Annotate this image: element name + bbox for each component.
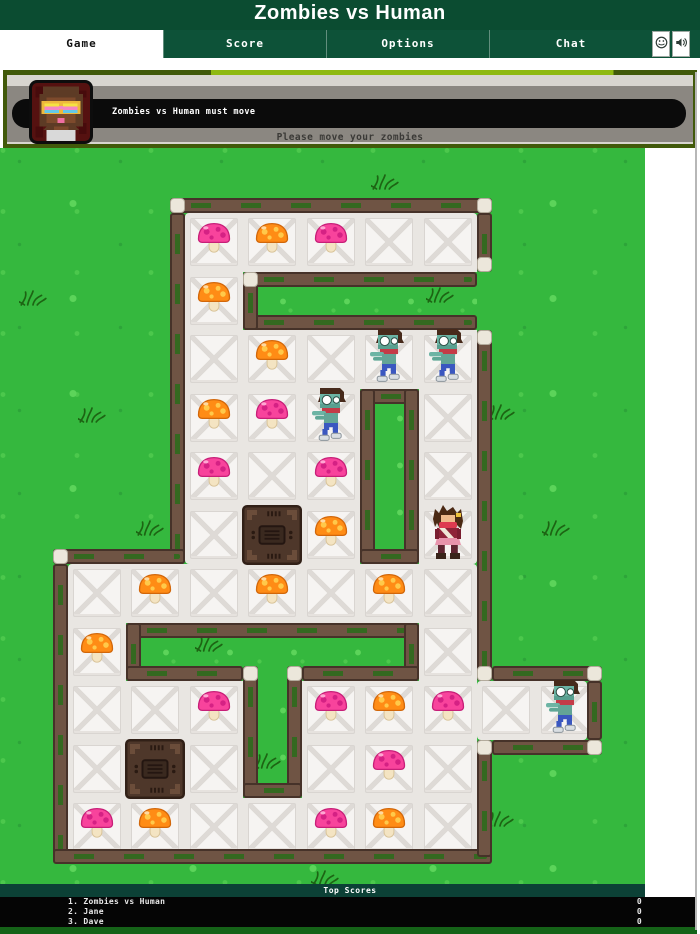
tab-score[interactable]: Score (163, 30, 326, 58)
wall-segment (492, 740, 602, 755)
score-value: 0 (637, 917, 642, 927)
grass-tuft-icon (542, 520, 570, 536)
mushroom-pink-icon (196, 690, 232, 721)
floor-tile[interactable] (307, 745, 355, 793)
score-name: 1. Zombies vs Human (68, 897, 165, 907)
wall-corner-cap (477, 666, 492, 681)
human-sprite[interactable] (427, 503, 469, 561)
score-name: 2. Jane (68, 907, 104, 917)
floor-tile[interactable] (190, 569, 238, 617)
floor-tile[interactable] (190, 511, 238, 559)
zombie-sprite[interactable] (429, 329, 467, 383)
wall-segment (477, 740, 492, 857)
wall-segment (53, 849, 493, 864)
wall-segment (404, 389, 419, 565)
top-scores-title: Top Scores (0, 886, 700, 895)
mushroom-pink-icon (313, 690, 349, 721)
floor-tile[interactable] (424, 394, 472, 442)
mushroom-pink-icon (371, 749, 407, 780)
floor-tile[interactable] (424, 803, 472, 851)
sound-icon (674, 35, 689, 54)
bottom-bar (0, 927, 697, 934)
game-board[interactable] (0, 148, 645, 884)
wall-segment (492, 666, 602, 681)
zombie-sprite[interactable] (546, 680, 584, 734)
mushroom-pink-icon (196, 222, 232, 253)
mushroom-orange-icon (79, 632, 115, 663)
floor-tile[interactable] (190, 803, 238, 851)
mushroom-pink-icon (79, 807, 115, 838)
mushroom-pink-icon (196, 456, 232, 487)
mushroom-orange-icon (371, 573, 407, 604)
wall-corner-cap (243, 666, 258, 681)
floor-tile[interactable] (248, 452, 296, 500)
score-row: 3. Dave0 (0, 917, 697, 927)
grass-tuft-icon (78, 407, 106, 423)
mushroom-orange-icon (371, 690, 407, 721)
panel-accent (3, 70, 697, 75)
floor-tile[interactable] (248, 803, 296, 851)
wall-segment (170, 198, 493, 213)
mushroom-pink-icon (313, 456, 349, 487)
floor-tile[interactable] (365, 218, 413, 266)
tab-bar: GameScoreOptionsChat (0, 30, 700, 58)
message-headline: Zombies vs Human must move (112, 107, 255, 117)
mushroom-orange-icon (137, 807, 173, 838)
floor-tile[interactable] (424, 569, 472, 617)
tabbar-underline (0, 58, 700, 70)
wall-corner-cap (477, 330, 492, 345)
floor-tile[interactable] (307, 335, 355, 383)
grass-tuft-icon (195, 636, 223, 652)
mushroom-orange-icon (254, 339, 290, 370)
game-page: Zombies vs Human GameScoreOptionsChat Zo… (0, 0, 700, 934)
floor-tile[interactable] (73, 686, 121, 734)
mushroom-pink-icon (313, 807, 349, 838)
tab-game[interactable]: Game (0, 30, 163, 58)
wall-segment (243, 272, 477, 287)
grass-tuft-icon (19, 290, 47, 306)
score-list: 1. Zombies vs Human02. Jane03. Dave0 (0, 897, 697, 927)
grass-tuft-icon (371, 174, 399, 190)
app-header: Zombies vs Human (0, 0, 700, 30)
score-value: 0 (637, 907, 642, 917)
mushroom-pink-icon (313, 222, 349, 253)
mushroom-orange-icon (137, 573, 173, 604)
wall-segment (360, 389, 375, 565)
wall-segment (126, 623, 419, 638)
wall-corner-cap (477, 257, 492, 272)
floor-tile[interactable] (190, 335, 238, 383)
floor-tile[interactable] (424, 218, 472, 266)
floor-tile[interactable] (424, 452, 472, 500)
wall-corner-cap (53, 549, 68, 564)
zombie-sprite[interactable] (312, 388, 350, 442)
message-subline: Please move your zombies (7, 132, 693, 143)
grass-tuft-icon (426, 287, 454, 303)
wall-segment (243, 783, 302, 798)
wall-segment (302, 666, 419, 681)
mushroom-orange-icon (313, 515, 349, 546)
wall-segment (243, 666, 258, 798)
mushroom-orange-icon (254, 573, 290, 604)
wall-segment (53, 549, 185, 564)
mushroom-orange-icon (371, 807, 407, 838)
wall-segment (477, 330, 492, 681)
smiley-icon (654, 35, 669, 54)
wall-segment (170, 213, 185, 564)
score-value: 0 (637, 897, 642, 907)
wall-corner-cap (477, 740, 492, 755)
score-row: 2. Jane0 (0, 907, 697, 917)
mushroom-orange-icon (196, 398, 232, 429)
wall-segment (287, 666, 302, 798)
tab-chat[interactable]: Chat (489, 30, 652, 58)
wall-corner-cap (287, 666, 302, 681)
wall-segment (126, 666, 243, 681)
page-title: Zombies vs Human (0, 2, 700, 25)
mushroom-pink-icon (254, 398, 290, 429)
sound-button[interactable] (672, 31, 690, 57)
grass-tuft-icon (136, 520, 164, 536)
floor-tile[interactable] (482, 686, 530, 734)
wall-segment (587, 681, 602, 740)
floor-tile[interactable] (190, 745, 238, 793)
zombie-sprite[interactable] (370, 329, 408, 383)
floor-tile[interactable] (424, 628, 472, 676)
crate-sprite[interactable] (125, 739, 185, 799)
floor-tile[interactable] (131, 686, 179, 734)
message-pill: Zombies vs Human must move (12, 99, 686, 128)
grass-tuft-icon (311, 870, 339, 884)
floor-tile[interactable] (73, 745, 121, 793)
score-name: 3. Dave (68, 917, 104, 927)
wall-corner-cap (243, 272, 258, 287)
wall-corner-cap (170, 198, 185, 213)
wall-corner-cap (587, 666, 602, 681)
wall-segment (243, 315, 477, 330)
score-row: 1. Zombies vs Human0 (0, 897, 697, 907)
mushroom-orange-icon (254, 222, 290, 253)
wall-corner-cap (587, 740, 602, 755)
scrollbar[interactable] (695, 72, 697, 930)
floor-tile[interactable] (307, 569, 355, 617)
wall-segment (53, 564, 68, 857)
message-panel: Zombies vs Human must move Please move y… (3, 70, 697, 148)
crate-sprite[interactable] (242, 505, 302, 565)
mushroom-orange-icon (196, 281, 232, 312)
mushroom-pink-icon (430, 690, 466, 721)
tab-options[interactable]: Options (326, 30, 489, 58)
wall-corner-cap (477, 198, 492, 213)
wall-segment (360, 549, 419, 564)
smiley-button[interactable] (652, 31, 670, 57)
floor-tile[interactable] (73, 569, 121, 617)
floor-tile[interactable] (424, 745, 472, 793)
